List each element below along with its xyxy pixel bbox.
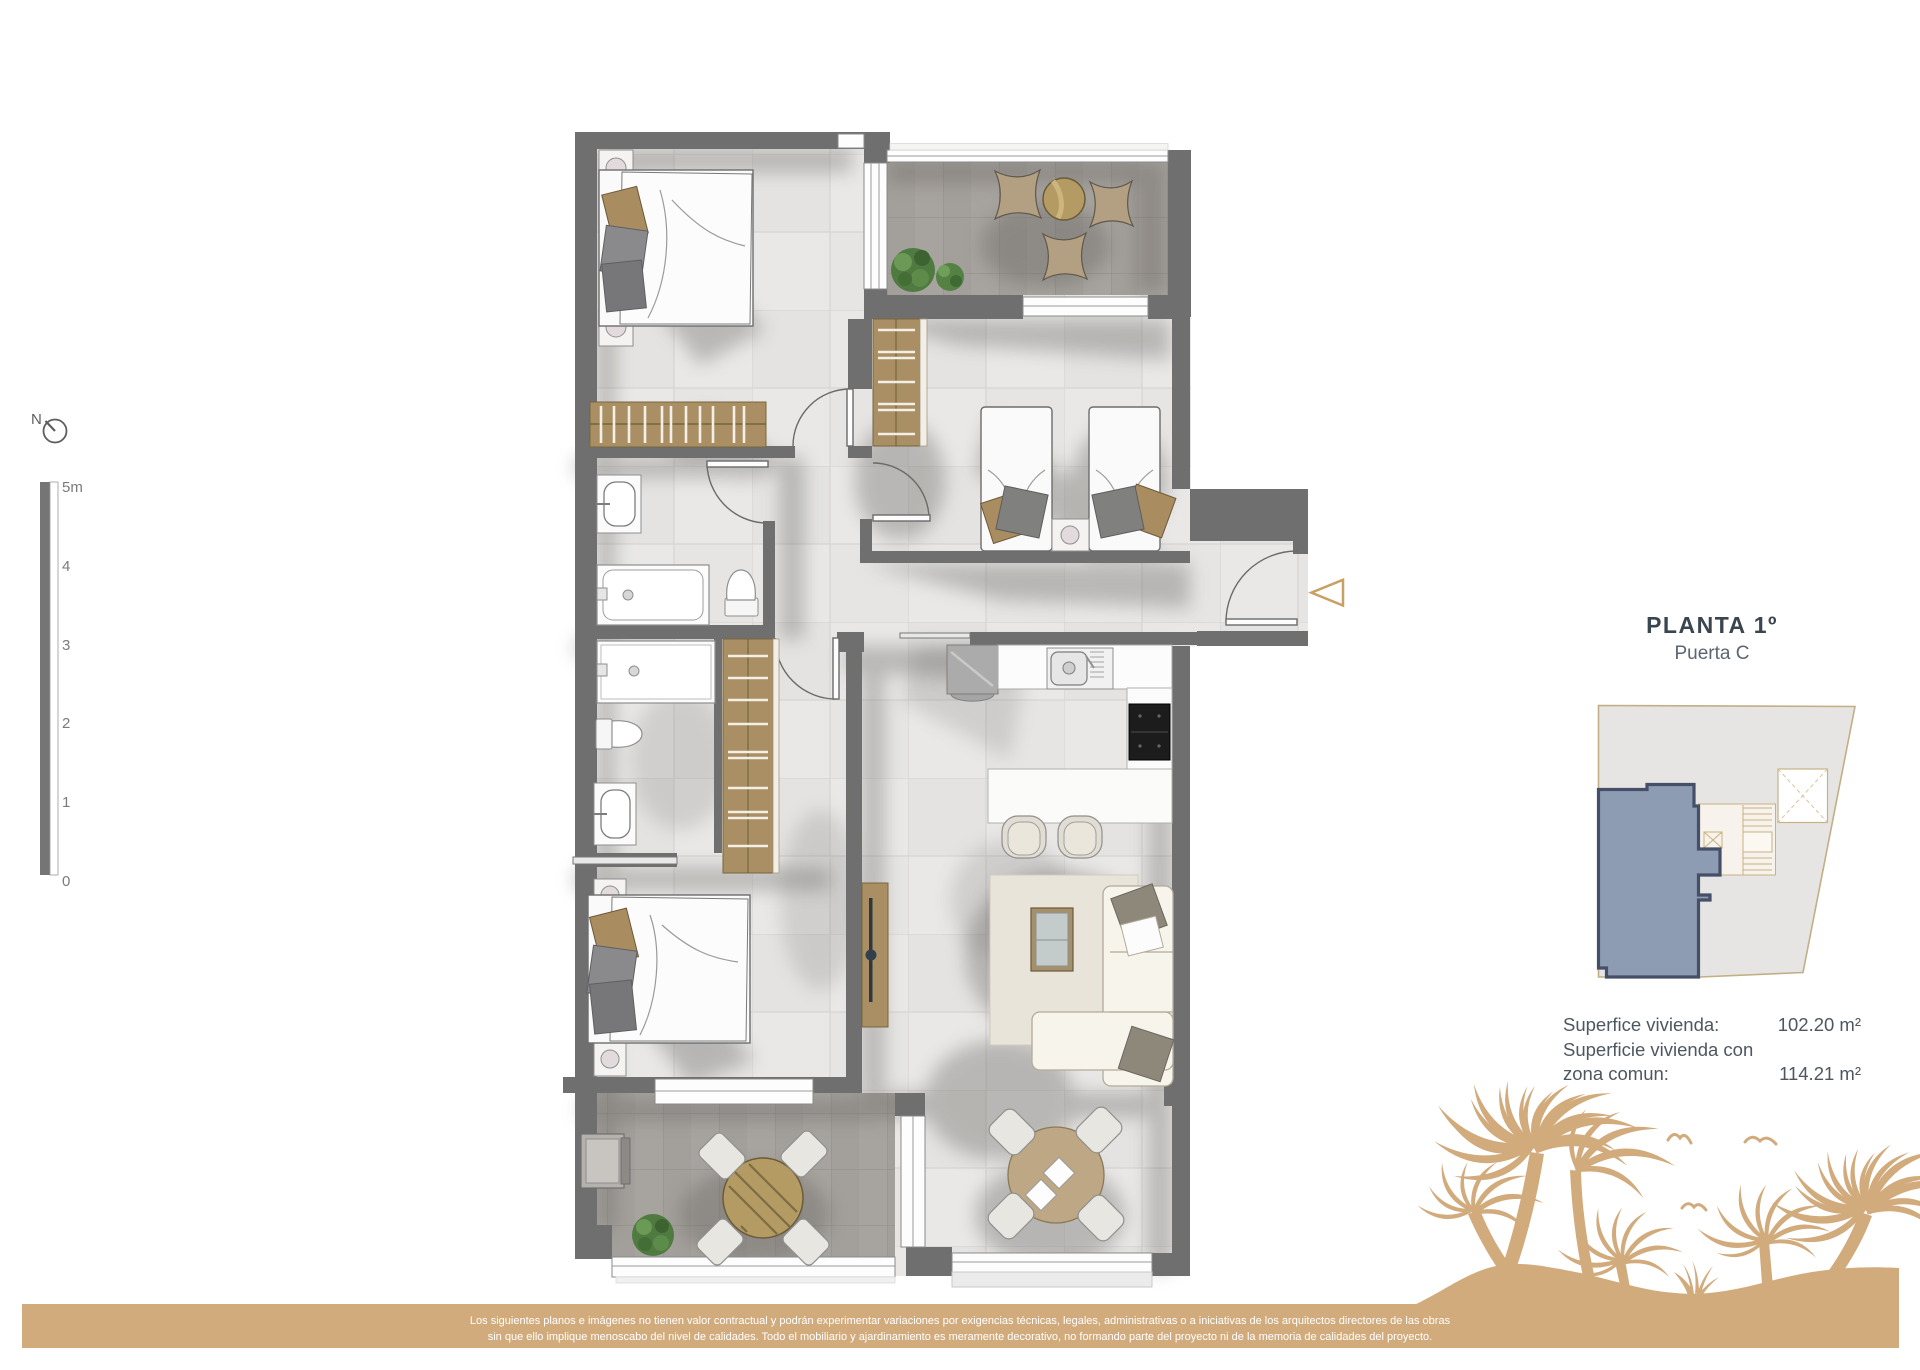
svg-text:Superficie vivienda con: Superficie vivienda con [1563, 1039, 1753, 1060]
svg-text:2: 2 [62, 715, 70, 732]
svg-text:4: 4 [62, 558, 70, 575]
svg-text:102.20 m²: 102.20 m² [1778, 1014, 1861, 1035]
svg-text:N: N [31, 411, 42, 428]
svg-text:Puerta C: Puerta C [1675, 643, 1750, 664]
svg-text:5m: 5m [62, 479, 83, 496]
svg-text:1: 1 [62, 794, 70, 811]
svg-text:PLANTA 1º: PLANTA 1º [1646, 612, 1778, 638]
svg-text:sin que ello implique menoscab: sin que ello implique menoscabo del nive… [488, 1331, 1433, 1343]
svg-text:Superfice vivienda:: Superfice vivienda: [1563, 1014, 1719, 1035]
svg-text:zona comun:: zona comun: [1563, 1063, 1669, 1084]
svg-text:0: 0 [62, 873, 70, 890]
svg-text:114.21 m²: 114.21 m² [1779, 1063, 1861, 1084]
svg-text:Los siguientes planos e imágen: Los siguientes planos e imágenes no tien… [470, 1315, 1451, 1327]
svg-text:3: 3 [62, 637, 70, 654]
